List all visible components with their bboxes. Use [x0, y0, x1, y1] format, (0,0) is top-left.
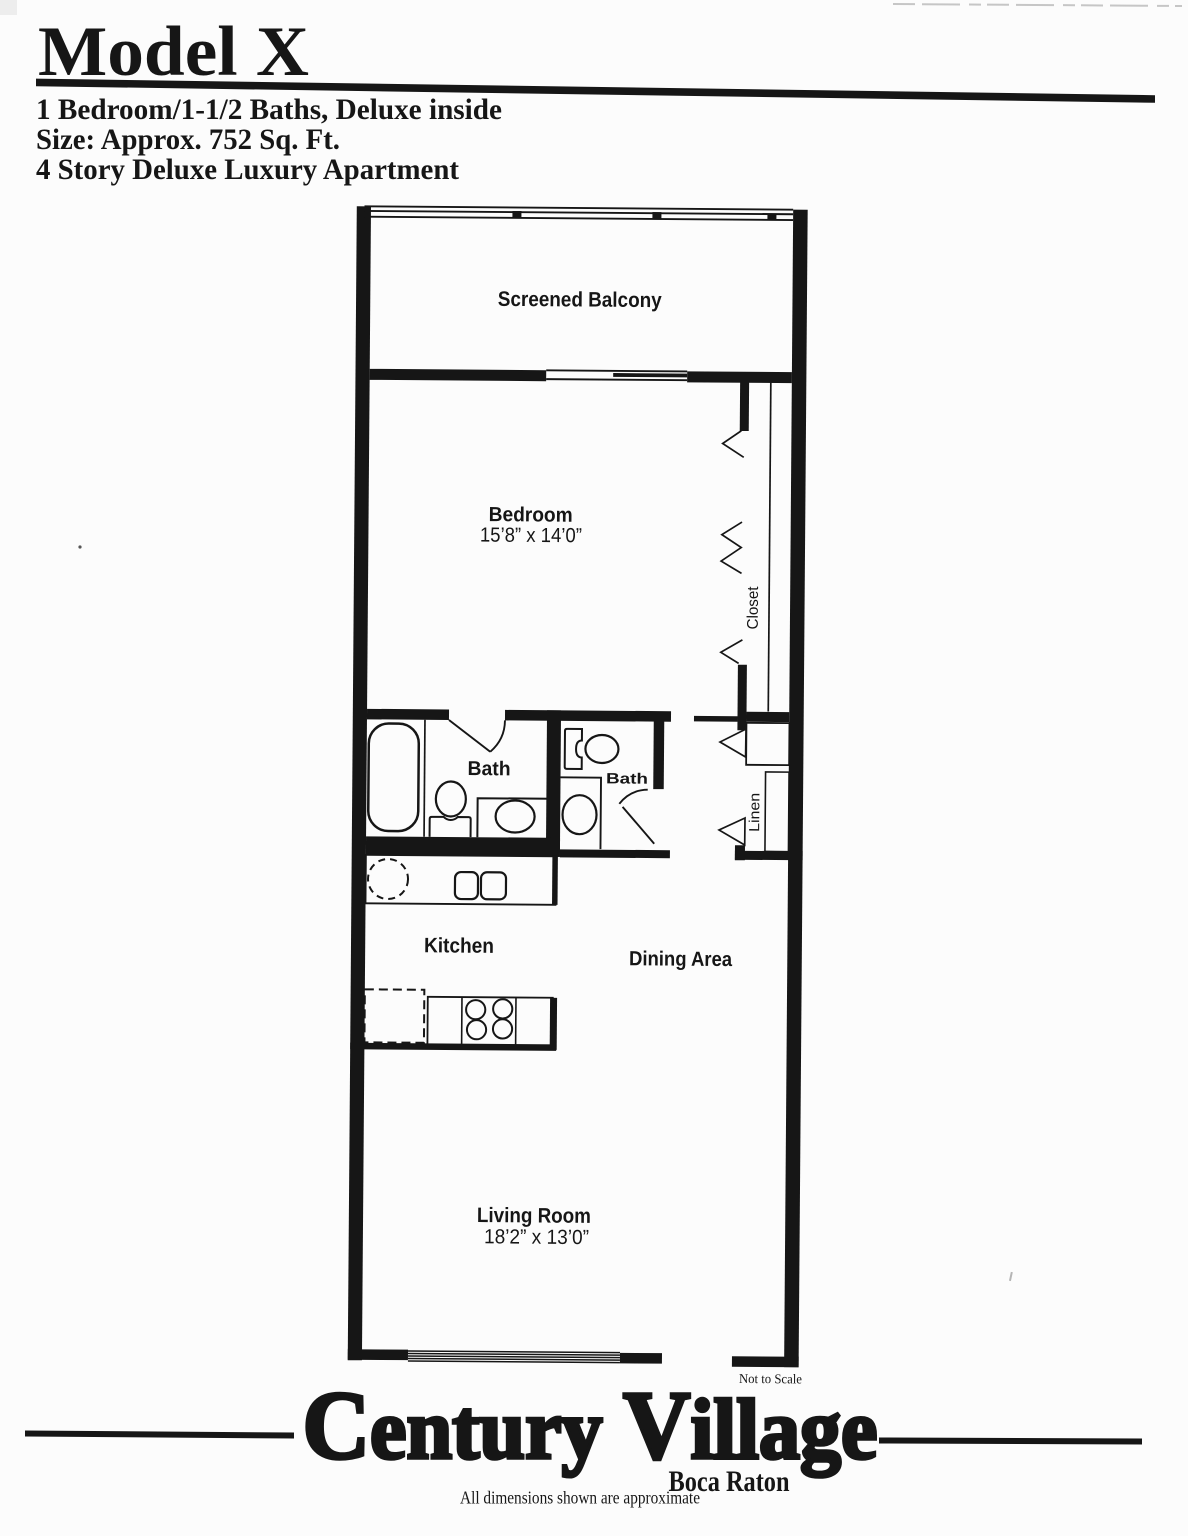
svg-text:18’2” x 13’0”: 18’2” x 13’0” [484, 1225, 589, 1249]
svg-text:Kitchen: Kitchen [424, 934, 494, 958]
svg-text:Bath: Bath [606, 770, 648, 787]
svg-text:Linen: Linen [747, 793, 763, 832]
svg-text:Screened Balcony: Screened Balcony [498, 288, 662, 312]
svg-text:Dining Area: Dining Area [629, 947, 733, 971]
svg-text:Century Village: Century Village [303, 1372, 878, 1480]
svg-text:Bath: Bath [467, 758, 510, 780]
svg-text:All dimensions shown are appro: All dimensions shown are approximate [460, 1488, 700, 1508]
svg-text:Living Room: Living Room [477, 1204, 591, 1228]
svg-text:15’8” x 14’0”: 15’8” x 14’0” [480, 524, 582, 548]
svg-text:Size: Approx. 752 Sq. Ft.: Size: Approx. 752 Sq. Ft. [36, 123, 340, 156]
svg-text:Closet: Closet [745, 586, 762, 630]
svg-text:1 Bedroom/1-1/2 Baths, Deluxe: 1 Bedroom/1-1/2 Baths, Deluxe inside [36, 93, 502, 126]
svg-text:4 Story Deluxe Luxury Apartmen: 4 Story Deluxe Luxury Apartment [36, 153, 459, 186]
